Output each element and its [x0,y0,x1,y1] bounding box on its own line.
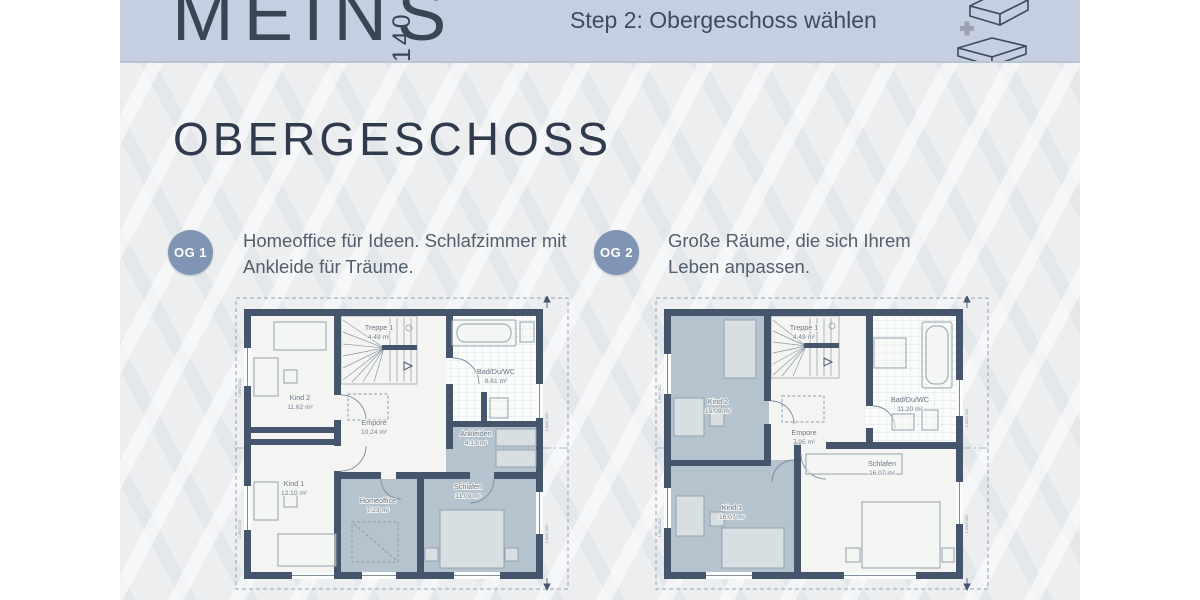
svg-text:7.23 m²: 7.23 m² [367,507,390,514]
svg-text:Treppe 1: Treppe 1 [365,323,394,332]
svg-text:Ankleiden: Ankleiden [460,429,492,438]
reference-arrows [964,296,970,590]
svg-text:8.61 m²: 8.61 m² [485,378,508,385]
svg-text:1.99/2.092: 1.99/2.092 [657,518,662,538]
svg-text:Treppe 1: Treppe 1 [790,323,819,332]
svg-text:4.49 m²: 4.49 m² [368,334,391,341]
sink [892,414,914,430]
header-band: MEINS 140 Step 2: Obergeschoss wählen [120,0,1080,63]
svg-text:4.13 m²: 4.13 m² [465,440,488,447]
og1-description: Homeoffice für Ideen. Schlafzimmer mit A… [243,228,568,281]
svg-text:1.99/2.092: 1.99/2.092 [657,384,662,404]
sink [520,322,534,342]
svg-text:1.00/2.092: 1.00/2.092 [964,514,969,534]
brand-model-number: 140 [388,0,417,62]
svg-text:11.62 m²: 11.62 m² [287,404,313,411]
content-panel: MEINS 140 Step 2: Obergeschoss wählen [120,0,1080,600]
svg-text:Kind 2: Kind 2 [708,397,728,406]
toilet [490,398,508,418]
svg-text:Schlafen: Schlafen [454,482,482,491]
svg-text:1.00/2.092: 1.00/2.092 [544,524,549,544]
svg-text:1.00/2.092: 1.00/2.092 [544,412,549,432]
step-indicator: Step 2: Obergeschoss wählen [570,7,877,34]
svg-text:1.00/2.092: 1.00/2.092 [964,408,969,428]
svg-text:7.95 m²: 7.95 m² [793,439,816,446]
svg-text:Bad/Du/WC: Bad/Du/WC [477,367,515,376]
page-title: OBERGESCHOSS [173,112,612,166]
og2-badge: OG 2 [594,230,639,275]
plus-icon [960,22,974,36]
svg-text:1.99/2.192: 1.99/2.192 [237,378,242,398]
svg-text:Kind 1: Kind 1 [284,479,304,488]
svg-text:Empore: Empore [791,428,816,437]
svg-text:16.07 m²: 16.07 m² [869,470,896,477]
floorplan-og2-option[interactable]: Treppe 1 4.49 m² Kind 2 15.09 m² Bad/Du/… [654,296,990,593]
shower [874,338,906,368]
svg-text:10.24 m²: 10.24 m² [361,429,388,436]
svg-text:Homeoffice: Homeoffice [360,496,396,505]
double-bed [862,502,940,568]
page: MEINS 140 Step 2: Obergeschoss wählen [0,0,1200,600]
svg-text:Empore: Empore [361,418,386,427]
svg-text:Schlafen: Schlafen [868,459,896,468]
svg-text:11.20 m²: 11.20 m² [897,406,923,413]
floorplan-og1-option[interactable]: Treppe 1 4.49 m² Kind 2 11.62 m² Bad/Du/… [234,296,570,593]
svg-text:4.49 m²: 4.49 m² [793,334,816,341]
svg-text:16.07 m²: 16.07 m² [719,514,746,521]
svg-text:11.09 m²: 11.09 m² [455,493,481,500]
svg-text:Kind 1: Kind 1 [722,503,742,512]
svg-text:1.99/2.192: 1.99/2.192 [237,519,242,539]
svg-text:12.10 m²: 12.10 m² [281,490,308,497]
toilet [922,410,938,430]
svg-text:15.09 m²: 15.09 m² [705,408,732,415]
svg-text:Kind 2: Kind 2 [290,393,310,402]
og1-badge: OG 1 [168,230,213,275]
og2-description: Große Räume, die sich Ihrem Leben anpass… [668,228,933,281]
add-upper-floor-icon [932,0,1032,63]
svg-text:Bad/Du/WC: Bad/Du/WC [891,395,929,404]
reference-arrows [544,296,550,590]
